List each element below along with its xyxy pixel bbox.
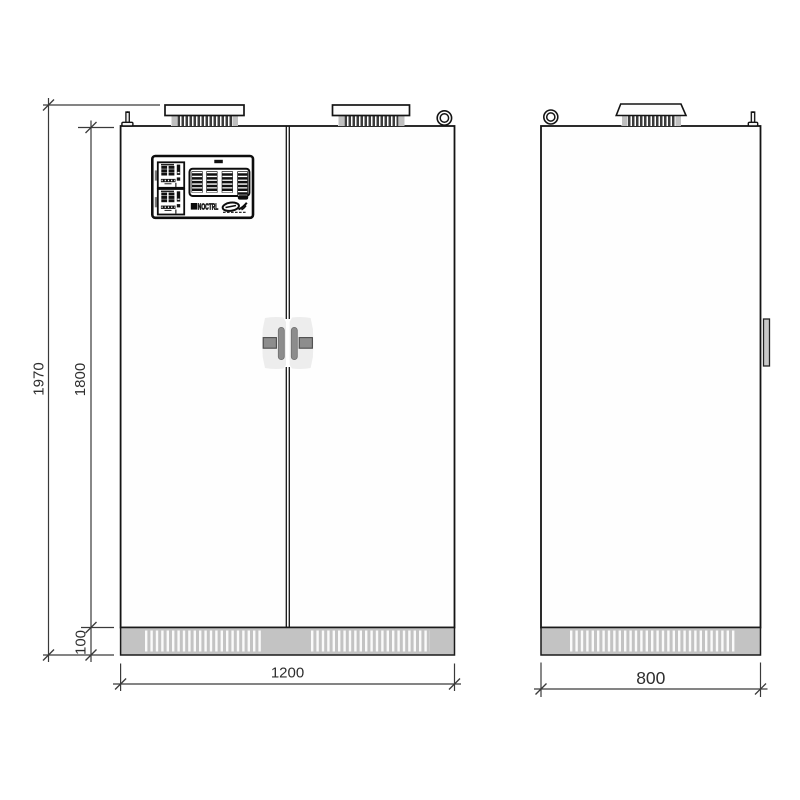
svg-text:1200: 1200 (271, 665, 304, 682)
svg-text:800: 800 (636, 668, 665, 688)
svg-text:100: 100 (73, 630, 90, 655)
svg-text:1800: 1800 (72, 363, 89, 396)
svg-text:1970: 1970 (31, 362, 48, 395)
svg-text:NOCTRL: NOCTRL (198, 201, 219, 211)
